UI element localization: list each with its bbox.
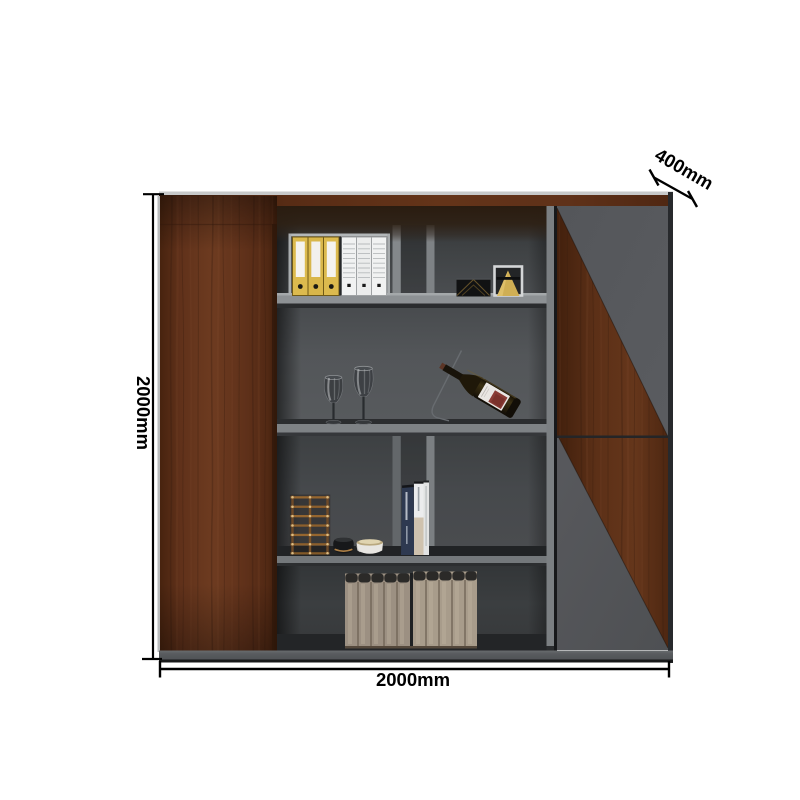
svg-text:2000mm: 2000mm [376, 669, 450, 690]
svg-text:2000mm: 2000mm [133, 376, 154, 450]
